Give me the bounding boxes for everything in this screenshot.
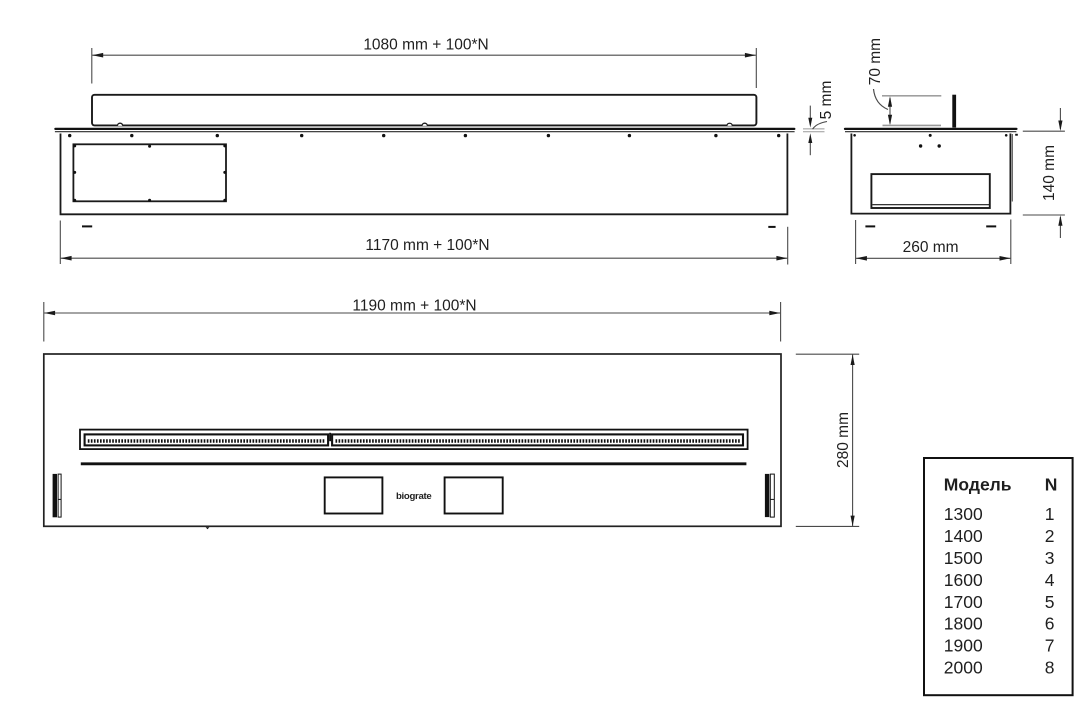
svg-text:1800: 1800 bbox=[944, 614, 983, 634]
svg-text:N: N bbox=[1045, 474, 1058, 494]
svg-text:1300: 1300 bbox=[944, 504, 983, 524]
svg-text:1600: 1600 bbox=[944, 570, 983, 590]
svg-text:1190 mm + 100*N: 1190 mm + 100*N bbox=[352, 298, 476, 315]
svg-text:Модель: Модель bbox=[944, 474, 1012, 494]
svg-text:1500: 1500 bbox=[944, 548, 983, 568]
svg-text:3: 3 bbox=[1045, 548, 1055, 568]
svg-text:1400: 1400 bbox=[944, 526, 983, 546]
svg-text:1080 mm + 100*N: 1080 mm + 100*N bbox=[363, 37, 488, 54]
svg-text:2: 2 bbox=[1045, 526, 1055, 546]
svg-text:1: 1 bbox=[1045, 504, 1055, 524]
svg-text:7: 7 bbox=[1045, 636, 1055, 656]
svg-text:4: 4 bbox=[1045, 570, 1055, 590]
svg-text:260 mm: 260 mm bbox=[903, 239, 959, 256]
svg-text:280 mm: 280 mm bbox=[835, 412, 852, 468]
svg-text:2000: 2000 bbox=[944, 658, 983, 678]
svg-text:5: 5 bbox=[1045, 592, 1055, 612]
svg-text:biograte: biograte bbox=[396, 491, 431, 502]
svg-text:1170 mm + 100*N: 1170 mm + 100*N bbox=[365, 237, 489, 254]
svg-text:5 mm: 5 mm bbox=[818, 81, 835, 120]
svg-text:70 mm: 70 mm bbox=[867, 38, 884, 85]
svg-text:6: 6 bbox=[1045, 614, 1055, 634]
svg-text:8: 8 bbox=[1045, 658, 1055, 678]
svg-text:1700: 1700 bbox=[944, 592, 983, 612]
svg-text:140 mm: 140 mm bbox=[1041, 145, 1058, 201]
svg-text:1900: 1900 bbox=[944, 636, 983, 656]
